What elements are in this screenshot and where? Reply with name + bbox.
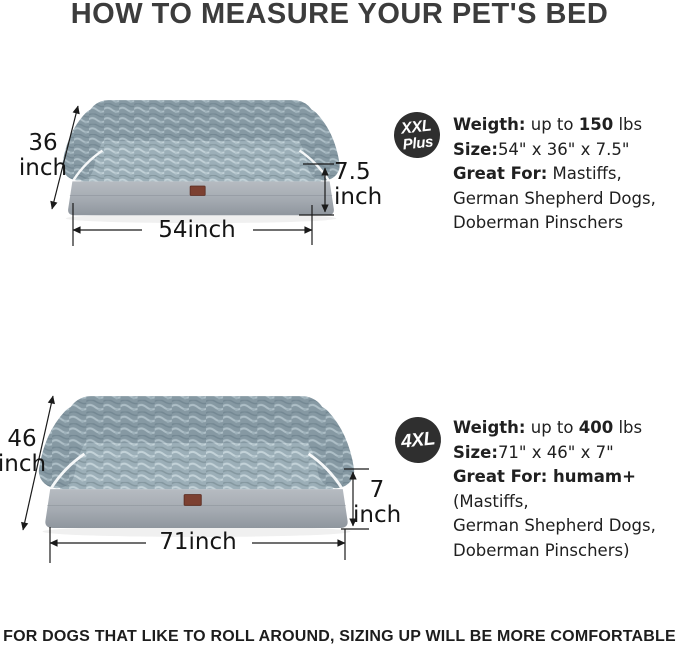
weight-suffix: lbs (613, 418, 642, 437)
bed-right-bolster (314, 422, 336, 471)
great-for-label: Great For: (453, 467, 547, 486)
weight-label: Weigth: (453, 418, 526, 437)
brand-tag (190, 186, 205, 195)
weight-mid: up to (526, 115, 579, 134)
size-label: Size: (453, 443, 498, 462)
bed-left-bolster (57, 422, 79, 471)
badge-line1: 4XL (400, 429, 436, 451)
spec-great-for: Great For: humam+(Mastiffs, (453, 465, 679, 514)
great-for-label: Great For: (453, 164, 547, 183)
bed-right-bolster (305, 123, 324, 166)
depth-unit: inch (0, 452, 50, 477)
bed2-height-label: 7 inch (353, 478, 401, 528)
size-value: 71" x 46" x 7" (498, 443, 614, 462)
spec-great-line2: German Shepherd Dogs, (453, 187, 656, 212)
depth-value: 36 (13, 131, 73, 156)
pet-bed-illustration-4xl (35, 388, 358, 546)
page-title: HOW TO MEASURE YOUR PET'S BED (0, 0, 679, 28)
badge-line2: Plus (402, 134, 434, 152)
great-for-bold-extra: humam+ (547, 467, 636, 486)
bed1-depth-label: 36 inch (13, 131, 73, 181)
weight-mid: up to (526, 418, 579, 437)
weight-label: Weigth: (453, 115, 526, 134)
size-label: Size: (453, 140, 498, 159)
great-for-first: (Mastiffs, (453, 492, 529, 511)
spec-weight: Weigth: up to 150 lbs (453, 113, 656, 138)
spec-text-4xl: Weigth: up to 400 lbs Size:71" x 46" x 7… (453, 416, 679, 563)
spec-weight: Weigth: up to 400 lbs (453, 416, 679, 441)
size-badge-4xl: 4XL (393, 415, 444, 466)
height-value: 7 (353, 478, 401, 503)
bed1-height-label: 7.5 inch (334, 160, 382, 210)
depth-value: 46 (0, 427, 50, 452)
spec-size: Size:71" x 46" x 7" (453, 441, 679, 466)
height-unit: inch (353, 503, 401, 528)
footer-note: FOR DOGS THAT LIKE TO ROLL AROUND, SIZIN… (0, 628, 679, 646)
bed-back-bolster (87, 100, 314, 141)
bed2-width-label: 71inch (148, 530, 248, 555)
spec-size: Size:54" x 36" x 7.5" (453, 138, 656, 163)
size-value: 54" x 36" x 7.5" (498, 140, 630, 159)
spec-great-line3: Doberman Pinschers) (453, 539, 679, 564)
bed1-width-label: 54inch (140, 218, 254, 243)
height-unit: inch (334, 185, 382, 210)
weight-suffix: lbs (613, 115, 642, 134)
pet-bed-illustration-xxl (59, 93, 343, 231)
weight-value: 150 (579, 115, 613, 134)
bed-back-bolster (67, 396, 325, 443)
spec-great-for: Great For: Mastiffs, (453, 162, 656, 187)
height-value: 7.5 (334, 160, 382, 185)
size-badge-xxl-plus: XXL Plus (392, 110, 443, 161)
weight-value: 400 (579, 418, 613, 437)
brand-tag (184, 495, 201, 506)
spec-great-line2: German Shepherd Dogs, (453, 514, 679, 539)
depth-unit: inch (13, 156, 73, 181)
spec-text-xxl-plus: Weigth: up to 150 lbs Size:54" x 36" x 7… (453, 113, 656, 236)
spec-great-line3: Doberman Pinschers (453, 211, 656, 236)
great-for-first: Mastiffs, (547, 164, 621, 183)
bed2-depth-label: 46 inch (0, 427, 50, 477)
bed-left-bolster (78, 123, 97, 166)
